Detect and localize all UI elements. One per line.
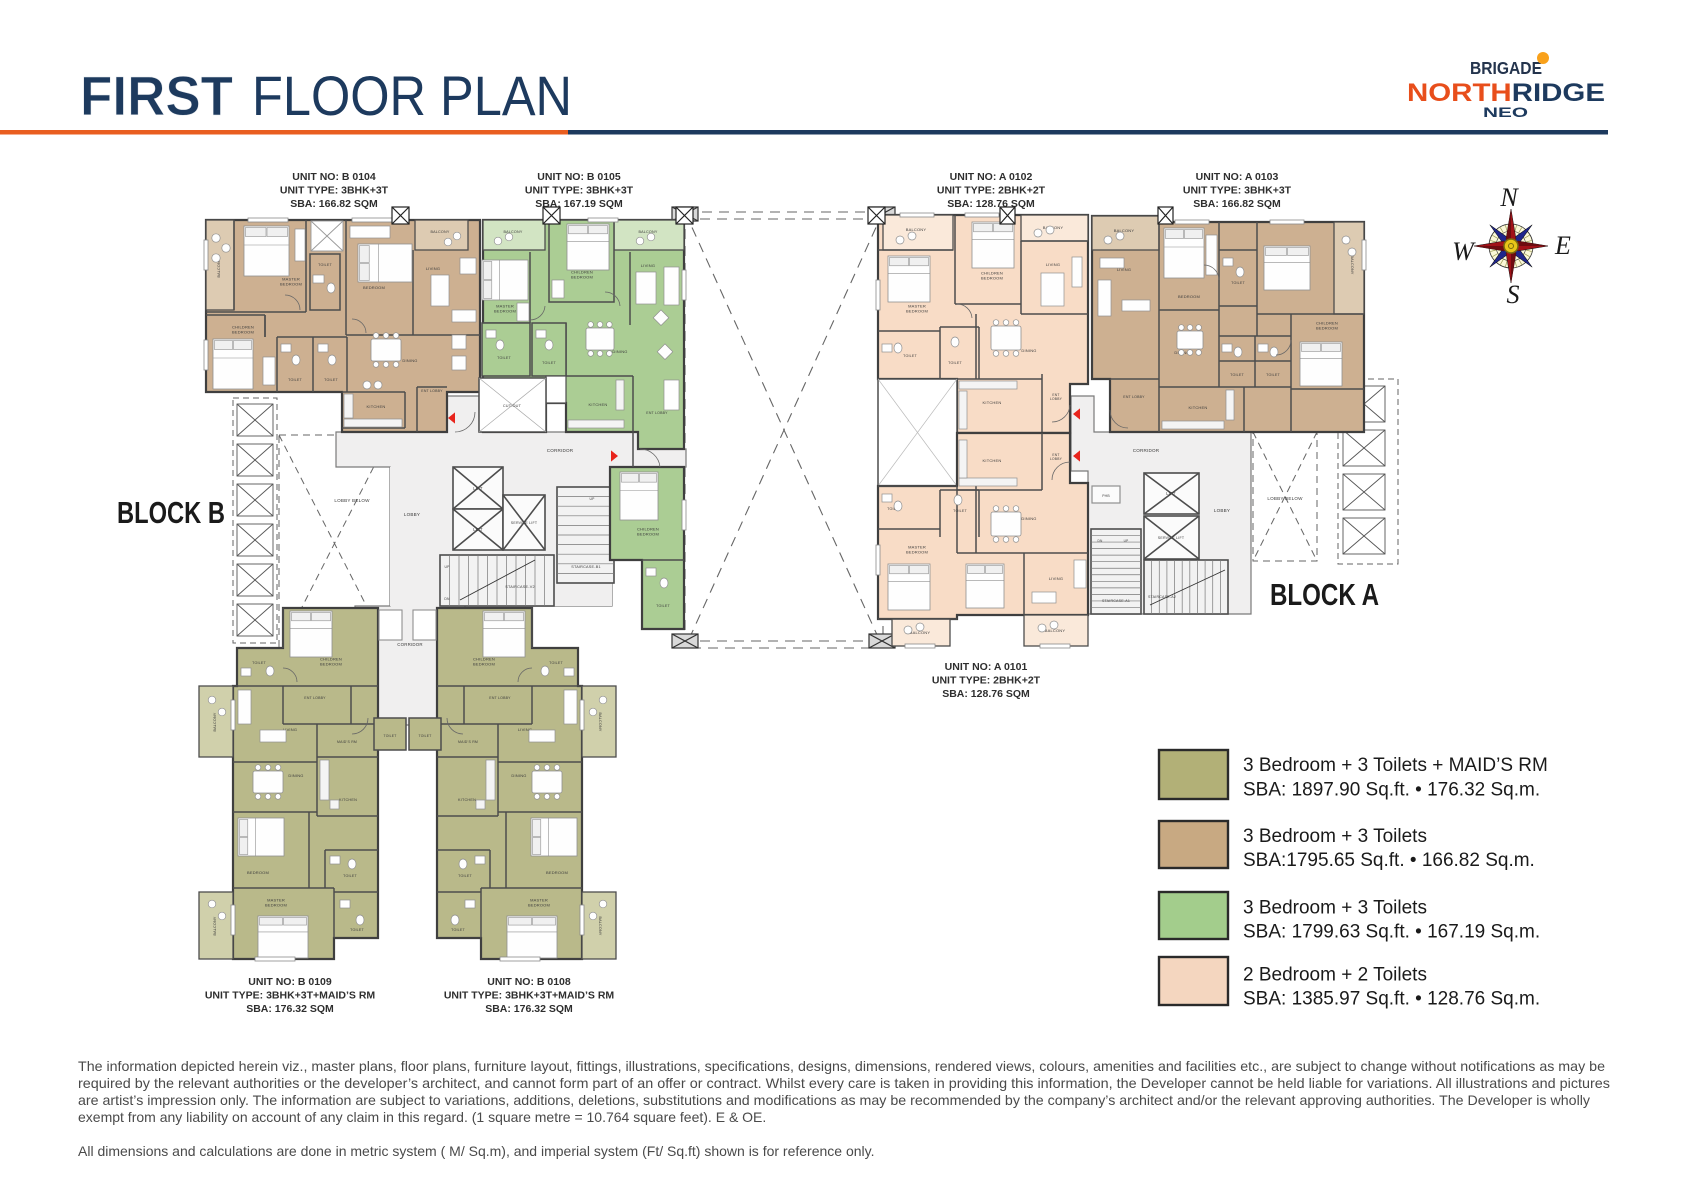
svg-text:TOILET: TOILET — [903, 354, 917, 358]
svg-text:ENT LOBBY: ENT LOBBY — [646, 411, 668, 415]
svg-text:SBA:1795.65 Sq.ft. • 166.82 Sq: SBA:1795.65 Sq.ft. • 166.82 Sq.m. — [1243, 850, 1535, 871]
svg-text:TOILET: TOILET — [497, 356, 511, 360]
svg-text:All dimensions and calculation: All dimensions and calculations are done… — [78, 1143, 874, 1159]
svg-text:ENT LOBBY: ENT LOBBY — [489, 696, 511, 700]
svg-text:TOILET: TOILET — [324, 378, 338, 382]
svg-text:TOILET: TOILET — [542, 361, 556, 365]
svg-text:MAID’S RM: MAID’S RM — [337, 740, 357, 744]
svg-text:KITCHEN: KITCHEN — [589, 402, 608, 407]
svg-text:DINING: DINING — [402, 358, 417, 363]
svg-text:STAIRCASE-V2: STAIRCASE-V2 — [505, 585, 535, 589]
svg-text:BALCONY: BALCONY — [1350, 255, 1354, 274]
svg-text:KITCHEN: KITCHEN — [458, 798, 476, 802]
svg-text:MASTERBEDROOM: MASTERBEDROOM — [494, 304, 516, 314]
svg-text:DN: DN — [444, 597, 450, 601]
svg-text:BEDROOM: BEDROOM — [546, 870, 568, 875]
svg-text:3 Bedroom + 3 Toilets: 3 Bedroom + 3 Toilets — [1243, 898, 1427, 919]
svg-text:BALCONY: BALCONY — [503, 230, 522, 234]
svg-text:LOBBY: LOBBY — [404, 512, 420, 517]
svg-text:CHILDRENBEDROOM: CHILDRENBEDROOM — [571, 270, 593, 280]
svg-text:UNIT NO: B 0105UNIT TYPE: 3BHK: UNIT NO: B 0105UNIT TYPE: 3BHK+3TSBA: 16… — [525, 171, 634, 210]
svg-text:SBA: 1799.63 Sq.ft. • 167.19 S: SBA: 1799.63 Sq.ft. • 167.19 Sq.m. — [1243, 922, 1540, 943]
svg-text:BALCONY: BALCONY — [430, 230, 449, 234]
svg-text:3 Bedroom + 3 Toilets: 3 Bedroom + 3 Toilets — [1243, 826, 1427, 847]
svg-text:2 Bedroom + 2 Toilets: 2 Bedroom + 2 Toilets — [1243, 965, 1427, 986]
svg-text:UNIT NO: A 0103UNIT TYPE: 3BHK: UNIT NO: A 0103UNIT TYPE: 3BHK+3TSBA: 16… — [1183, 171, 1292, 210]
svg-text:DINING: DINING — [1021, 516, 1036, 521]
svg-text:LIFT: LIFT — [1166, 491, 1176, 496]
svg-text:DINING: DINING — [1021, 348, 1036, 353]
svg-text:NORTHRIDGE: NORTHRIDGE — [1407, 79, 1605, 107]
svg-text:SBA: 1897.90 Sq.ft. • 176.32 S: SBA: 1897.90 Sq.ft. • 176.32 Sq.m. — [1243, 780, 1540, 801]
svg-text:BALCONY: BALCONY — [598, 712, 602, 731]
svg-text:BALCONY: BALCONY — [638, 230, 657, 234]
svg-text:E: E — [1554, 231, 1571, 260]
svg-text:TOILET: TOILET — [350, 928, 364, 932]
svg-text:LOBBY BELOW: LOBBY BELOW — [334, 498, 370, 503]
svg-text:LIFT: LIFT — [473, 527, 483, 532]
svg-text:CHILDRENBEDROOM: CHILDRENBEDROOM — [473, 657, 495, 667]
svg-text:FLOOR PLAN: FLOOR PLAN — [252, 64, 572, 127]
svg-text:BALCONY: BALCONY — [906, 227, 927, 232]
svg-text:STAIRCASE-A1: STAIRCASE-A1 — [1102, 599, 1130, 603]
svg-text:CHILDRENBEDROOM: CHILDRENBEDROOM — [320, 657, 342, 667]
svg-text:TOILET: TOILET — [458, 874, 472, 878]
svg-text:TOILET: TOILET — [1266, 373, 1280, 377]
svg-text:TOILET: TOILET — [252, 661, 266, 665]
svg-text:CHILDRENBEDROOM: CHILDRENBEDROOM — [1316, 321, 1338, 331]
svg-text:TOILET: TOILET — [288, 378, 302, 382]
svg-text:exempt from any liability on a: exempt from any liability on account of … — [78, 1109, 766, 1125]
svg-text:TOILET: TOILET — [318, 263, 332, 267]
svg-text:MASTERBEDROOM: MASTERBEDROOM — [906, 545, 928, 555]
svg-text:ENT LOBBY: ENT LOBBY — [1123, 395, 1145, 399]
svg-text:TOILET: TOILET — [656, 604, 670, 608]
svg-text:TOILET: TOILET — [549, 661, 563, 665]
svg-text:BLOCK B: BLOCK B — [117, 495, 225, 530]
svg-text:TOILET: TOILET — [1230, 373, 1244, 377]
svg-text:FIRST: FIRST — [80, 64, 233, 127]
svg-text:TOILET: TOILET — [343, 874, 357, 878]
svg-text:3 Bedroom + 3 Toilets + MAID’S: 3 Bedroom + 3 Toilets + MAID’S RM — [1243, 755, 1548, 776]
svg-text:S: S — [1507, 280, 1520, 309]
svg-text:BEDROOM: BEDROOM — [363, 285, 385, 290]
svg-text:CHILDRENBEDROOM: CHILDRENBEDROOM — [637, 527, 659, 537]
svg-text:LIVING: LIVING — [641, 263, 655, 268]
svg-text:MASTERBEDROOM: MASTERBEDROOM — [280, 277, 302, 287]
svg-text:TOILET: TOILET — [1231, 281, 1245, 285]
svg-text:ENT LOBBY: ENT LOBBY — [421, 389, 443, 393]
svg-text:are artist’s impression only.: are artist’s impression only. The inform… — [78, 1092, 1590, 1108]
svg-text:DN: DN — [1097, 539, 1103, 543]
svg-text:TOILET: TOILET — [953, 509, 967, 513]
svg-text:LOBBY BELOW: LOBBY BELOW — [1267, 496, 1303, 501]
svg-text:BALCONY: BALCONY — [1114, 228, 1135, 233]
svg-text:N: N — [1499, 183, 1519, 212]
svg-text:CORRIDOR: CORRIDOR — [1133, 448, 1160, 453]
svg-text:LIVING: LIVING — [1049, 576, 1063, 581]
svg-text:UP: UP — [589, 497, 595, 501]
svg-text:UNIT NO: A 0101UNIT TYPE: 2BHK: UNIT NO: A 0101UNIT TYPE: 2BHK+2TSBA: 12… — [932, 661, 1041, 700]
svg-text:UNIT NO: B 0104UNIT TYPE: 3BHK: UNIT NO: B 0104UNIT TYPE: 3BHK+3TSBA: 16… — [280, 171, 389, 210]
svg-text:DINING: DINING — [612, 349, 627, 354]
svg-text:LIVING: LIVING — [426, 266, 440, 271]
svg-text:KITCHEN: KITCHEN — [339, 798, 357, 802]
svg-text:MASTERBEDROOM: MASTERBEDROOM — [906, 304, 928, 314]
svg-text:CUT-OUT: CUT-OUT — [503, 404, 522, 408]
svg-text:BLOCK A: BLOCK A — [1270, 577, 1379, 612]
svg-text:BRIGADE: BRIGADE — [1470, 58, 1542, 78]
svg-text:TOILET: TOILET — [418, 734, 431, 738]
svg-text:MASTERBEDROOM: MASTERBEDROOM — [265, 898, 287, 908]
svg-text:LOBBY: LOBBY — [1214, 508, 1230, 513]
svg-text:SBA: 1385.97 Sq.ft. • 128.76 S: SBA: 1385.97 Sq.ft. • 128.76 Sq.m. — [1243, 989, 1540, 1010]
svg-text:TOILET: TOILET — [948, 361, 962, 365]
svg-text:TOILET: TOILET — [383, 734, 396, 738]
svg-text:DINING: DINING — [288, 773, 303, 778]
svg-text:BEDROOM: BEDROOM — [247, 870, 269, 875]
svg-text:DINING: DINING — [511, 773, 526, 778]
svg-text:CHILDRENBEDROOM: CHILDRENBEDROOM — [981, 271, 1003, 281]
svg-text:BALCONY: BALCONY — [598, 916, 602, 935]
svg-text:The information depicted herei: The information depicted herein viz., ma… — [78, 1058, 1605, 1074]
svg-text:CORRIDOR: CORRIDOR — [397, 642, 423, 647]
svg-text:TOILET: TOILET — [451, 928, 465, 932]
svg-text:BEDROOM: BEDROOM — [1178, 294, 1200, 299]
svg-text:ENT LOBBY: ENT LOBBY — [304, 696, 326, 700]
svg-text:CHILDRENBEDROOM: CHILDRENBEDROOM — [232, 325, 254, 335]
svg-text:PHB: PHB — [1102, 494, 1110, 498]
svg-text:KITCHEN: KITCHEN — [983, 458, 1002, 463]
svg-text:STAIRCASE-A2: STAIRCASE-A2 — [1148, 595, 1176, 599]
svg-text:BALCONY: BALCONY — [213, 916, 217, 935]
svg-text:SERVICE LIFT: SERVICE LIFT — [511, 521, 538, 525]
svg-text:MAID’S RM: MAID’S RM — [458, 740, 478, 744]
svg-text:MASTERBEDROOM: MASTERBEDROOM — [528, 898, 550, 908]
svg-text:W: W — [1452, 237, 1476, 266]
svg-text:NEO: NEO — [1483, 104, 1528, 120]
svg-text:required by the relevant autho: required by the relevant authorities or … — [78, 1075, 1610, 1091]
svg-text:KITCHEN: KITCHEN — [983, 400, 1002, 405]
svg-text:KITCHEN: KITCHEN — [367, 404, 386, 409]
svg-text:LIVING: LIVING — [1046, 262, 1060, 267]
svg-text:UP: UP — [1124, 539, 1129, 543]
svg-text:STAIRCASE-B1: STAIRCASE-B1 — [571, 565, 601, 569]
svg-text:SERVICE LIFT: SERVICE LIFT — [1158, 536, 1185, 540]
svg-text:LIFT: LIFT — [473, 486, 483, 491]
svg-text:KITCHEN: KITCHEN — [1189, 405, 1208, 410]
svg-text:UP: UP — [444, 565, 450, 569]
svg-text:CORRIDOR: CORRIDOR — [547, 448, 574, 453]
svg-text:BALCONY: BALCONY — [213, 712, 217, 731]
svg-text:UNIT NO: A 0102UNIT TYPE: 2BHK: UNIT NO: A 0102UNIT TYPE: 2BHK+2TSBA: 12… — [937, 171, 1046, 210]
